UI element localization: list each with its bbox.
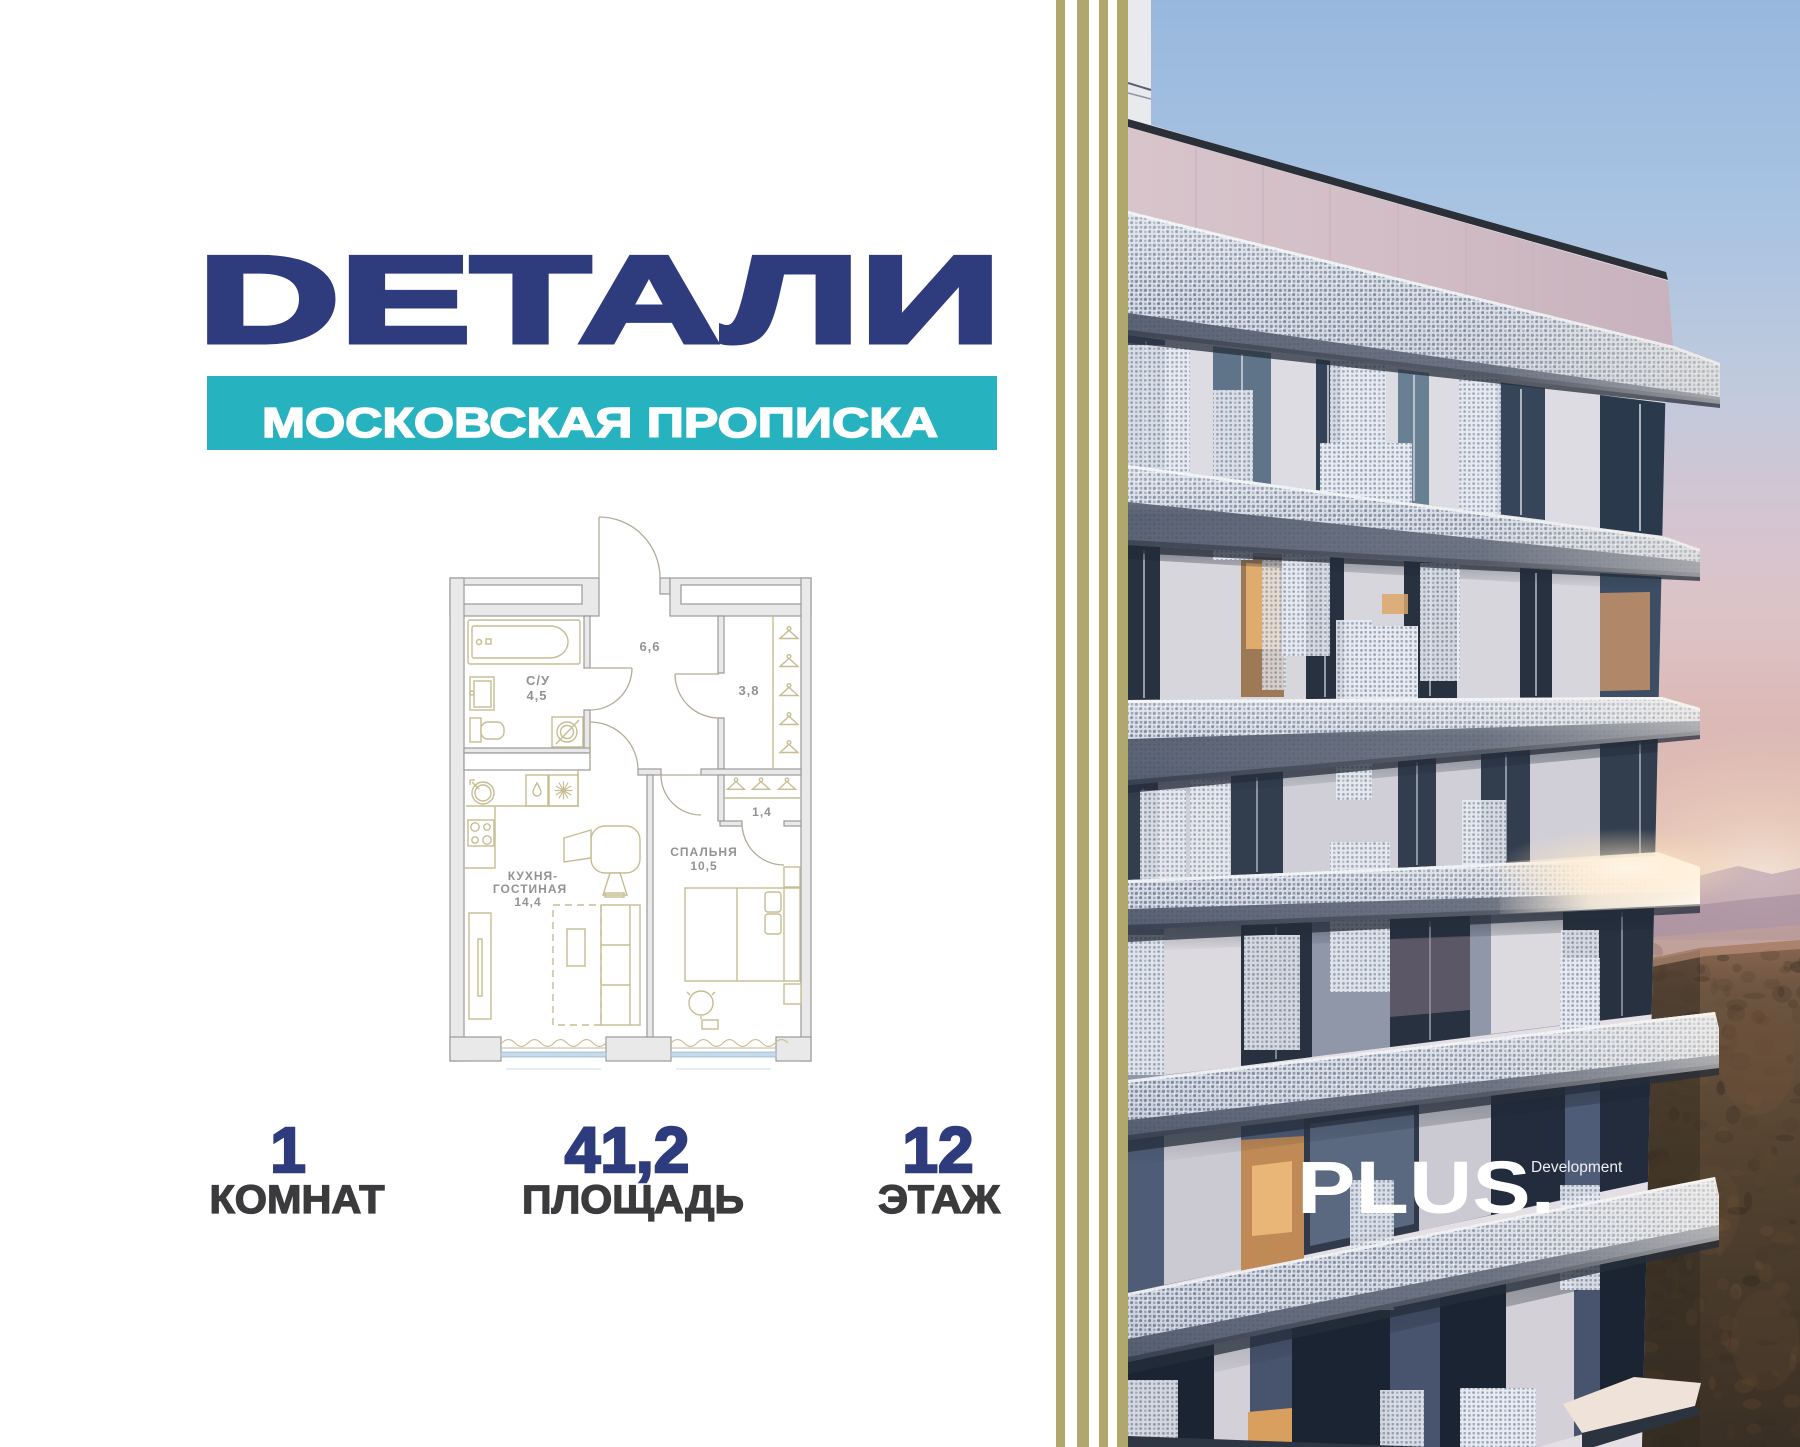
svg-text:PLUS.: PLUS. xyxy=(1297,1146,1555,1229)
svg-text:41,2: 41,2 xyxy=(565,1114,690,1186)
svg-text:КОМНАТ: КОМНАТ xyxy=(210,1178,385,1222)
svg-text:12: 12 xyxy=(902,1114,973,1186)
svg-text:14,4: 14,4 xyxy=(514,895,541,909)
svg-text:Development: Development xyxy=(1531,1159,1623,1176)
svg-text:ЭТАЖ: ЭТАЖ xyxy=(878,1178,1001,1222)
svg-text:МОСКОВСКАЯ ПРОПИСКА: МОСКОВСКАЯ ПРОПИСКА xyxy=(262,399,938,446)
svg-text:СПАЛЬНЯ: СПАЛЬНЯ xyxy=(670,845,737,859)
svg-text:С/У: С/У xyxy=(526,673,550,688)
svg-text:КУХНЯ-: КУХНЯ- xyxy=(508,869,558,883)
svg-text:1: 1 xyxy=(270,1114,306,1186)
svg-text:DЕТАЛИ: DЕТАЛИ xyxy=(198,232,1001,369)
svg-text:1,4: 1,4 xyxy=(752,805,772,819)
svg-text:ГОСТИНАЯ: ГОСТИНАЯ xyxy=(493,882,567,896)
svg-text:10,5: 10,5 xyxy=(690,859,717,873)
svg-text:ПЛОЩАДЬ: ПЛОЩАДЬ xyxy=(522,1178,744,1222)
svg-text:3,8: 3,8 xyxy=(738,683,759,698)
svg-text:6,6: 6,6 xyxy=(639,639,660,654)
svg-text:4,5: 4,5 xyxy=(526,688,547,703)
